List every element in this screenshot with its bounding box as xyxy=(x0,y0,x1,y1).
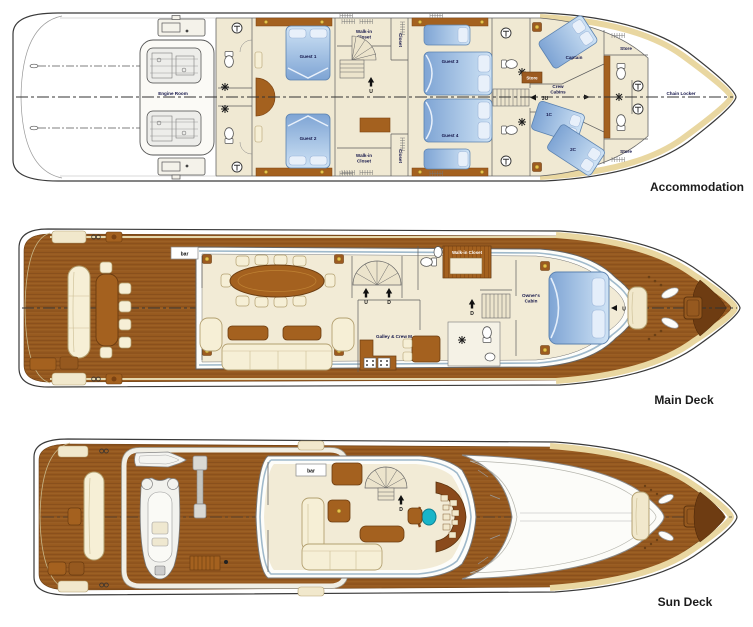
stair-down-label: D xyxy=(387,300,391,306)
engine-port xyxy=(147,48,201,83)
deck-label-accommodation: Accommodation xyxy=(650,180,744,194)
stair-up-label: U xyxy=(364,300,368,306)
closet-port-label: Closet xyxy=(398,33,403,48)
galley-label: Galley & Crew M xyxy=(376,334,412,339)
bow-up-label: U xyxy=(622,307,626,313)
aft-deck-bench[interactable] xyxy=(68,266,90,358)
sun-bar-box: bar xyxy=(296,464,326,476)
closet-stbd-label: Closet xyxy=(398,149,403,164)
yacht-deck-plans: Engine Room Guest 1 Gue xyxy=(0,0,753,627)
caprail-box-stbd xyxy=(58,581,88,592)
deck-plan-drawing: Engine Room Guest 1 Gue xyxy=(0,0,753,627)
helm-seat xyxy=(422,509,436,525)
aft-cushion-1 xyxy=(48,562,66,575)
store-amidships-label: Store xyxy=(526,76,538,81)
bar-label: bar xyxy=(181,252,189,258)
main-deck-plan: bar U D Walk-in Closet xyxy=(19,229,740,407)
crew-1c-label: 1C xyxy=(546,112,553,117)
guest1-label: Guest 1 xyxy=(300,54,317,59)
engine-room: Engine Room xyxy=(140,40,214,155)
crew-mess-table xyxy=(412,336,440,362)
rib-tender xyxy=(140,478,180,579)
stair-down-inner-label: D xyxy=(470,311,474,317)
salon-pillar xyxy=(203,255,212,264)
helm-side-chair xyxy=(408,508,422,524)
engine-stbd xyxy=(147,111,201,146)
captain-label: Captain xyxy=(566,55,583,60)
winch-stbd xyxy=(106,374,122,384)
sun-stair-down-label: D xyxy=(399,507,403,513)
caprail-box-port xyxy=(58,446,88,457)
dining-table xyxy=(230,265,324,297)
store-bow-stbd-label: Store xyxy=(620,149,632,154)
salon-pillar xyxy=(335,255,344,264)
engine-room-label: Engine Room xyxy=(158,91,188,96)
guest3-label: Guest 3 xyxy=(442,59,459,64)
caprail-box-port xyxy=(52,231,86,243)
deck-label-sun: Sun Deck xyxy=(658,595,713,609)
aft-cushion-2 xyxy=(69,562,84,575)
store-bow-port-label: Store xyxy=(620,46,632,51)
walkin-closet-main: Walk-in Closet xyxy=(443,246,491,278)
deck-box-1 xyxy=(30,358,56,370)
stair-landing xyxy=(360,118,390,132)
stair-up-label: U xyxy=(369,89,373,95)
caprail-box-stbd xyxy=(52,373,86,385)
aft-deck-table xyxy=(96,274,118,346)
caprail-pad-stbd xyxy=(298,587,324,596)
crew-2c-label: 2C xyxy=(570,147,577,152)
sofa-side-unit xyxy=(328,500,350,522)
bar-cabinet xyxy=(332,463,362,485)
deck-label-main: Main Deck xyxy=(654,393,714,407)
owners-bathroom xyxy=(448,322,500,366)
store-amidships: Store xyxy=(522,72,542,83)
deck-box-2 xyxy=(60,357,78,369)
bar-box: bar xyxy=(171,247,198,259)
accommodation-deck-plan: Engine Room Guest 1 Gue xyxy=(13,13,744,194)
caprail-pad-port xyxy=(298,441,324,450)
winch-port xyxy=(106,232,122,242)
walkin-closet-stbd-label: Walk-inCloset xyxy=(356,153,372,163)
guest2-label: Guest 2 xyxy=(300,136,317,141)
aft-side-table xyxy=(68,508,81,525)
sun-deck-plan: bar D xyxy=(34,439,737,609)
aft-sun-bench[interactable] xyxy=(84,472,104,560)
skylounge-coffee-table xyxy=(360,526,404,542)
walkin-closet-main-label: Walk-in Closet xyxy=(452,250,483,255)
bow-seat xyxy=(628,287,647,329)
coffee-table-2 xyxy=(283,326,321,340)
bow-seat xyxy=(632,492,649,540)
coffee-table-1 xyxy=(228,326,268,340)
guest4-label: Guest 4 xyxy=(442,133,459,138)
chain-locker-label: Chain Locker xyxy=(666,91,695,96)
sun-bar-label: bar xyxy=(307,469,315,475)
